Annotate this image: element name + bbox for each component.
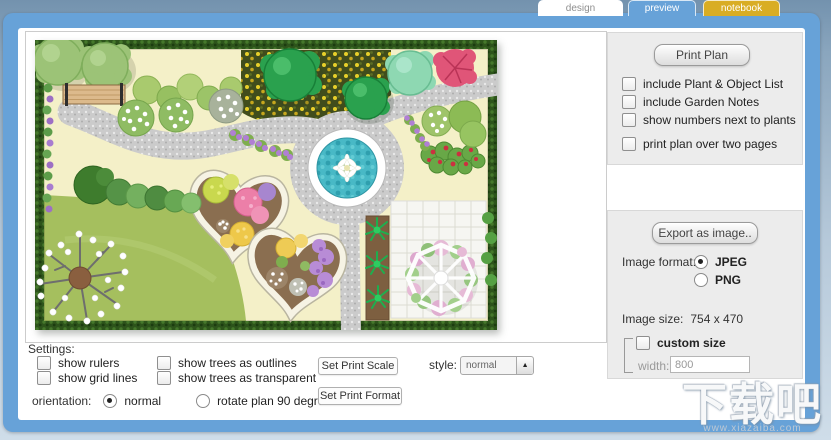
- checkbox-box[interactable]: [622, 113, 636, 127]
- image-format-label: Image format:: [622, 255, 696, 269]
- orientation-group: orientation: normal rotate plan 90 degre…: [32, 394, 337, 408]
- style-label: style:: [429, 358, 457, 372]
- radio-orientation-rotate[interactable]: [196, 394, 210, 408]
- checkbox-two-pages[interactable]: print plan over two pages: [622, 137, 777, 151]
- checkbox-include-plant-list[interactable]: include Plant & Object List: [622, 77, 783, 91]
- tab-notebook[interactable]: notebook: [703, 0, 780, 16]
- checkbox-box[interactable]: [622, 77, 636, 91]
- checkbox-custom-size[interactable]: custom size: [636, 336, 726, 350]
- radio-format-jpeg[interactable]: JPEG: [694, 255, 747, 269]
- export-options-panel: Export as image.. Image format: JPEG PNG…: [607, 210, 803, 379]
- image-size-label: Image size:: [622, 312, 683, 326]
- content-area: Settings: show rulers show grid lines sh…: [18, 28, 805, 420]
- checkbox-box[interactable]: [636, 336, 650, 350]
- bamboo-bed: [366, 216, 389, 320]
- radio-format-png[interactable]: PNG: [694, 273, 741, 287]
- pond: [308, 129, 386, 207]
- garden-plan-image: [35, 40, 497, 330]
- settings-title: Settings:: [28, 342, 75, 356]
- checkbox-show-numbers[interactable]: show numbers next to plants: [622, 113, 796, 127]
- main-panel: Settings: show rulers show grid lines sh…: [3, 13, 820, 432]
- custom-size-bracket: [624, 338, 633, 373]
- image-size-row: Image size: 754 x 470: [622, 312, 743, 326]
- image-size-value: 754 x 470: [690, 312, 743, 326]
- checkbox-trees-outlines[interactable]: show trees as outlines: [157, 356, 297, 370]
- set-print-format-button[interactable]: Set Print Format: [318, 387, 402, 405]
- print-plan-button[interactable]: Print Plan: [654, 44, 750, 66]
- print-options-panel: Print Plan include Plant & Object List i…: [607, 32, 803, 165]
- checkbox-show-rulers[interactable]: show rulers: [37, 356, 119, 370]
- export-image-button[interactable]: Export as image..: [652, 222, 758, 244]
- tab-design[interactable]: design: [538, 0, 623, 16]
- mint-tree: [385, 51, 436, 95]
- checkbox-box[interactable]: [622, 95, 636, 109]
- checkbox-box[interactable]: [157, 356, 171, 370]
- checkbox-box[interactable]: [622, 137, 636, 151]
- style-dropdown-value: normal: [461, 360, 516, 371]
- checkbox-trees-transparent[interactable]: show trees as transparent: [157, 371, 316, 385]
- tab-preview[interactable]: preview: [628, 0, 696, 16]
- radio-button[interactable]: [694, 255, 708, 269]
- radio-orientation-normal[interactable]: [103, 394, 117, 408]
- width-row: width:: [638, 359, 669, 373]
- width-label: width:: [638, 359, 669, 373]
- checkbox-box[interactable]: [37, 371, 51, 385]
- style-dropdown[interactable]: normal ▲: [460, 356, 534, 375]
- width-input[interactable]: [670, 356, 750, 373]
- checkbox-box[interactable]: [157, 371, 171, 385]
- orientation-label: orientation:: [32, 394, 91, 408]
- checkbox-show-grid-lines[interactable]: show grid lines: [37, 371, 137, 385]
- plan-preview-box: [25, 31, 607, 343]
- app-window: design preview notebook: [0, 0, 831, 440]
- dropdown-arrow-icon[interactable]: ▲: [516, 357, 533, 374]
- radio-button[interactable]: [694, 273, 708, 287]
- checkbox-box[interactable]: [37, 356, 51, 370]
- set-print-scale-button[interactable]: Set Print Scale: [318, 357, 398, 375]
- garden-bench: [63, 83, 125, 106]
- checkbox-include-garden-notes[interactable]: include Garden Notes: [622, 95, 759, 109]
